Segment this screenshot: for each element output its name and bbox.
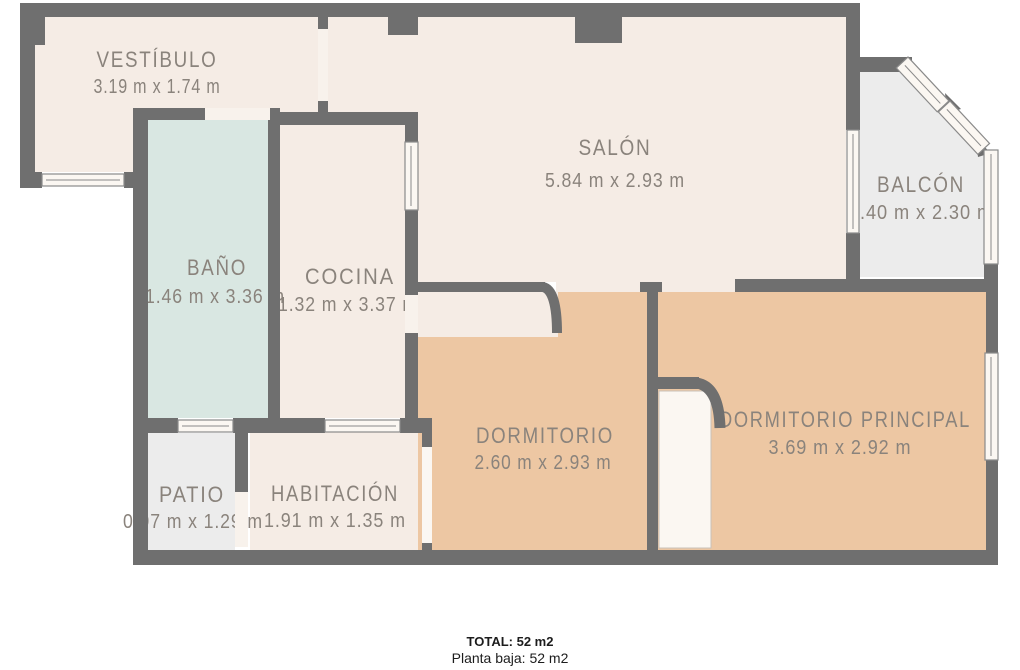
wall-habitacion-right-bottom: [422, 543, 432, 552]
door-bano: [205, 108, 270, 120]
wall-dormitorio-principal-stub: [647, 377, 699, 389]
wall-right-a: [986, 290, 998, 353]
wall-vestibulo-salon-divider-top: [318, 17, 328, 29]
wall-cocina-right-c: [405, 333, 418, 418]
room-dormitorio-label: DORMITORIO: [476, 423, 614, 448]
window-dormitorio-principal-right: [985, 353, 998, 460]
footer: TOTAL: 52 m2 Planta baja: 52 m2: [0, 634, 1020, 666]
room-habitacion-label: HABITACIÓN: [271, 481, 399, 506]
window-habitacion-top: [325, 420, 400, 432]
opening-vestibulo-salon: [318, 29, 328, 101]
wall-bano-cocina-divider: [268, 112, 280, 425]
wall-top: [20, 3, 860, 17]
room-salon-dimensions: 5.84 m x 2.93 m: [545, 170, 685, 192]
wall-balcon-right-corner: [984, 264, 998, 290]
wall-bottom: [133, 550, 998, 565]
wall-vestibulo-bottom-left-cap: [20, 172, 42, 188]
room-habitacion-dimensions: 1.91 m x 1.35 m: [264, 510, 406, 532]
window-balcon-door: [847, 130, 859, 233]
wall-salon-bottom-right: [735, 279, 998, 292]
room-salon-label: SALÓN: [579, 135, 652, 160]
wall-right-b: [986, 460, 998, 552]
wall-lower-band-a: [133, 418, 178, 433]
wall-habitacion-right-top: [422, 430, 432, 447]
footer-floor-area: Planta baja: 52 m2: [0, 650, 1020, 666]
footer-total-area: TOTAL: 52 m2: [0, 634, 1020, 649]
room-patio-label: PATIO: [159, 482, 225, 507]
room-balcon-label: BALCÓN: [877, 172, 965, 197]
door-patio: [235, 492, 248, 547]
wall-balcon-divider-bottom: [846, 233, 860, 290]
wall-balcon-divider-top: [846, 17, 860, 130]
wall-cocina-top: [277, 112, 418, 125]
room-dormitorio-dimensions: 2.60 m x 2.93 m: [475, 452, 612, 474]
room-vestibulo-label: VESTÍBULO: [97, 47, 218, 72]
door-cocina: [405, 295, 418, 333]
wall-dormitorio-divider: [647, 290, 658, 550]
window-bano-bottom: [178, 420, 233, 432]
room-dormitorio-principal-label: DORMITORIO PRINCIPAL: [719, 407, 971, 432]
wall-cocina-right-a: [405, 125, 418, 142]
door-habitacion: [422, 447, 432, 543]
window-vestibulo-bottom: [42, 174, 124, 186]
wall-left-upper: [20, 17, 35, 172]
room-cocina-dimensions: 1.32 m x 3.37 m: [278, 294, 418, 316]
hallway-floor: [418, 292, 558, 337]
opening-salon-dormitorio-principal: [662, 279, 735, 292]
room-dormitorio-principal-dimensions: 3.69 m x 2.92 m: [769, 437, 912, 459]
opening-salon-dormitorio: [556, 282, 640, 292]
room-vestibulo-dimensions: 3.19 m x 1.74 m: [94, 76, 221, 98]
wall-top-stub-a: [388, 17, 418, 35]
room-cocina-label: COCINA: [305, 264, 395, 289]
wall-lower-band-b: [233, 418, 325, 433]
door-leaf-dormitorio-principal: [659, 391, 711, 548]
room-bano-label: BAÑO: [187, 255, 247, 280]
wall-top-stub-b: [575, 17, 622, 43]
floorplan-drawing: VESTÍBULO 3.19 m x 1.74 m BAÑO 1.46 m x …: [0, 0, 1020, 670]
wall-left-lower: [133, 108, 148, 565]
room-balcon-dimensions: 1.40 m x 2.30 m: [849, 202, 993, 224]
window-balcon-right: [984, 150, 998, 264]
room-bano-dimensions: 1.46 m x 3.36 m: [145, 286, 285, 308]
wall-patio-right: [235, 433, 248, 492]
floorplan-page: VESTÍBULO 3.19 m x 1.74 m BAÑO 1.46 m x …: [0, 0, 1020, 670]
wall-salon-bottom-left: [415, 282, 545, 292]
window-cocina-right: [405, 142, 418, 210]
